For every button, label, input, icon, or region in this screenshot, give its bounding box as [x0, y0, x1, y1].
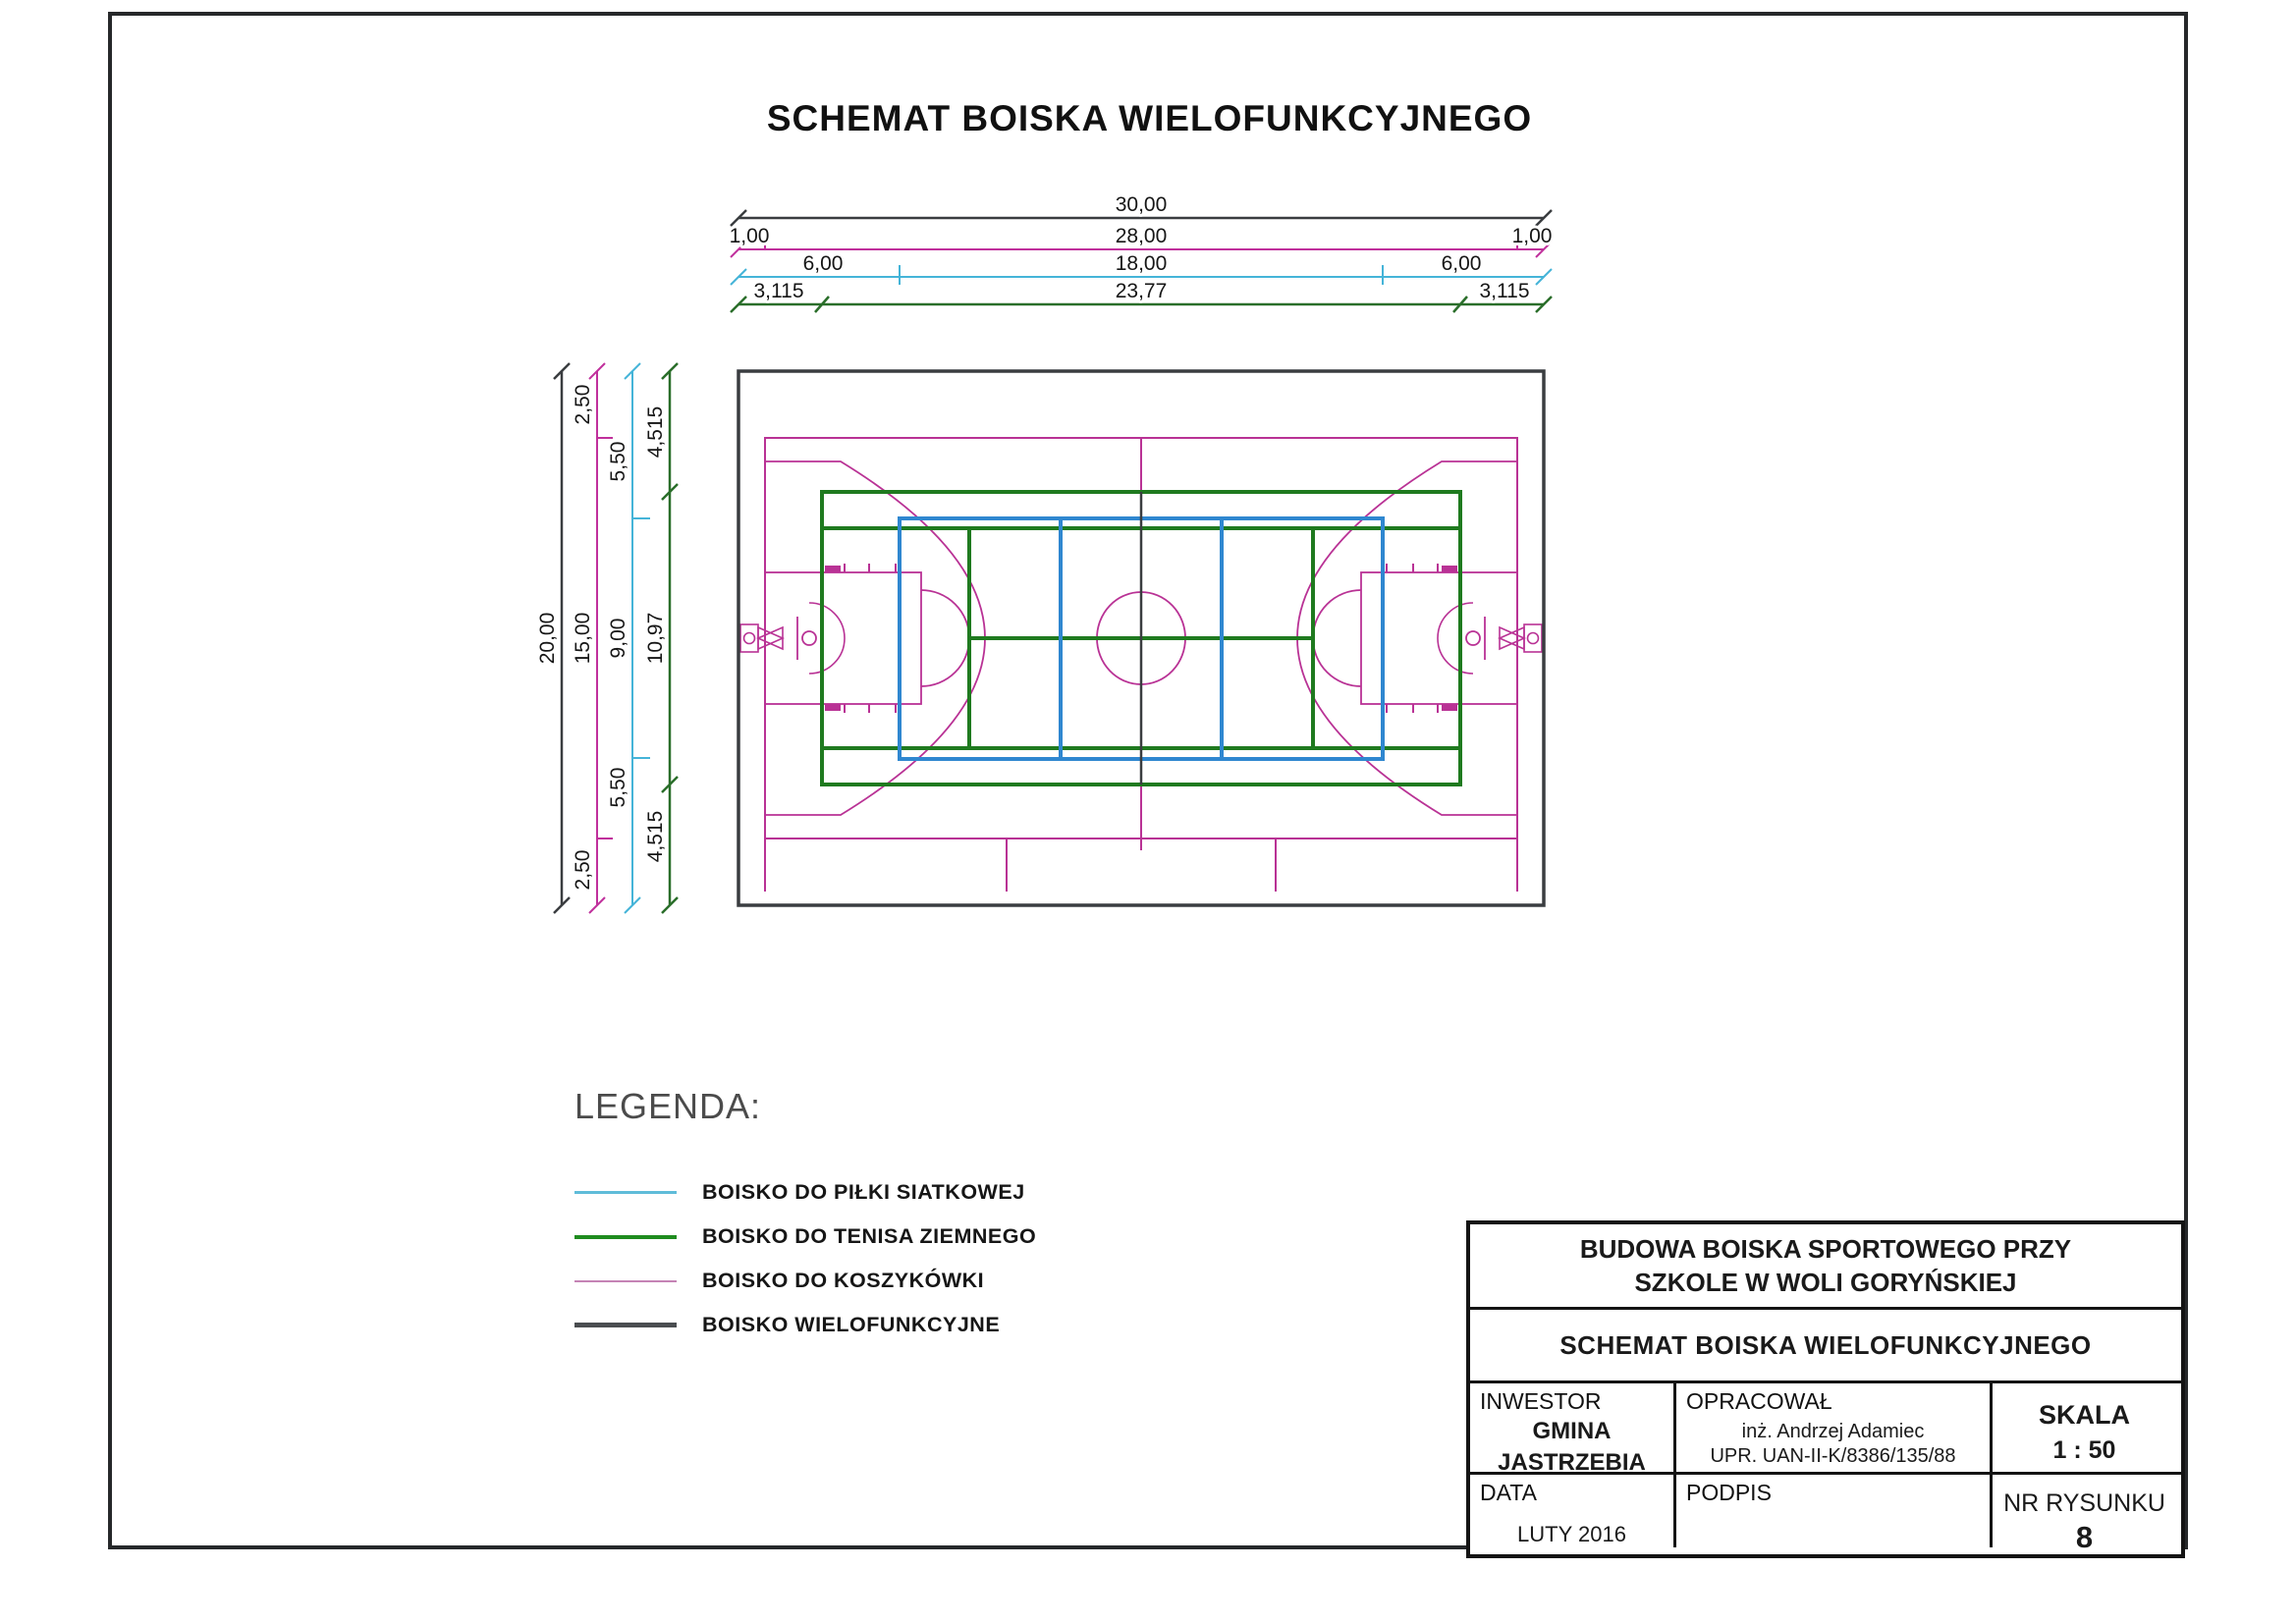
author-label: OPRACOWAŁ	[1686, 1388, 1980, 1415]
dim-field-height: 20,00	[536, 613, 559, 665]
legend-item-basketball: BOISKO DO KOSZYKÓWKI	[574, 1259, 1036, 1303]
dim-basketball-width: 28,00	[1116, 225, 1168, 247]
legend-label: BOISKO DO KOSZYKÓWKI	[702, 1269, 984, 1293]
dim-volleyball-margin-left: 6,00	[803, 252, 844, 275]
volleyball-line-swatch	[574, 1191, 677, 1194]
title-block: BUDOWA BOISKA SPORTOWEGO PRZY SZKOLE W W…	[1466, 1220, 2185, 1558]
date-cell: DATA LUTY 2016	[1470, 1475, 1676, 1547]
basketball-line-swatch	[574, 1280, 677, 1282]
dim-tennis-height: 10,97	[644, 613, 667, 665]
project-name-line1: BUDOWA BOISKA SPORTOWEGO PRZY	[1470, 1232, 2181, 1266]
dim-volleyball-margin-bottom: 5,50	[607, 768, 629, 808]
author-name: inż. Andrzej Adamiec	[1686, 1421, 1980, 1443]
investor-label: INWESTOR	[1480, 1388, 1664, 1415]
legend-item-volleyball: BOISKO DO PIŁKI SIATKOWEJ	[574, 1170, 1036, 1215]
dim-basketball-height: 15,00	[572, 613, 594, 665]
date-value: LUTY 2016	[1480, 1522, 1664, 1547]
date-label: DATA	[1480, 1480, 1664, 1506]
dim-tennis-margin-right: 3,115	[1480, 280, 1530, 302]
dim-tennis-width: 23,77	[1116, 280, 1168, 302]
legend-label: BOISKO WIELOFUNKCYJNE	[702, 1313, 1000, 1337]
legend-label: BOISKO DO PIŁKI SIATKOWEJ	[702, 1180, 1025, 1205]
investor-name-line1: GMINA	[1480, 1416, 1664, 1446]
dim-volleyball-margin-top: 5,50	[607, 442, 629, 482]
dim-volleyball-height: 9,00	[607, 619, 629, 659]
project-name-line2: SZKOLE W WOLI GORYŃSKIEJ	[1470, 1266, 2181, 1299]
title-block-row-date: DATA LUTY 2016 PODPIS NR RYSUNKU 8	[1470, 1475, 2181, 1547]
legend-item-tennis: BOISKO DO TENISA ZIEMNEGO	[574, 1215, 1036, 1259]
legend-item-multifunctional: BOISKO WIELOFUNKCYJNE	[574, 1303, 1036, 1347]
investor-cell: INWESTOR GMINA JASTRZEBIA	[1470, 1383, 1676, 1472]
dim-basketball-margin-bottom: 2,50	[572, 850, 594, 891]
scale-cell: SKALA 1 : 50	[1993, 1383, 2176, 1472]
multifunctional-line-swatch	[574, 1323, 677, 1327]
dim-tennis-margin-top: 4,515	[644, 406, 667, 459]
drawing-number-cell: NR RYSUNKU 8	[1993, 1475, 2176, 1547]
drawing-number-label: NR RYSUNKU	[2002, 1489, 2166, 1518]
tennis-line-swatch	[574, 1235, 677, 1239]
legend: BOISKO DO PIŁKI SIATKOWEJ BOISKO DO TENI…	[574, 1170, 1036, 1347]
author-cell: OPRACOWAŁ inż. Andrzej Adamiec UPR. UAN-…	[1676, 1383, 1993, 1472]
scale-value: 1 : 50	[2002, 1436, 2166, 1465]
legend-heading: LEGENDA:	[574, 1086, 761, 1127]
dim-top-labels: 30,00 1,00 28,00 1,00 6,00 18,00 6,00 3,…	[730, 193, 1553, 302]
dim-basketball-margin-top: 2,50	[572, 385, 594, 425]
signature-cell: PODPIS	[1676, 1475, 1993, 1547]
dim-volleyball-margin-right: 6,00	[1442, 252, 1482, 275]
title-block-drawing-title: SCHEMAT BOISKA WIELOFUNKCYJNEGO	[1470, 1310, 2181, 1383]
investor-name-line2: JASTRZEBIA	[1480, 1447, 1664, 1478]
scale-label: SKALA	[2002, 1400, 2166, 1431]
title-block-row-info: INWESTOR GMINA JASTRZEBIA OPRACOWAŁ inż.…	[1470, 1383, 2181, 1475]
basket-stand-right	[1500, 624, 1542, 652]
signature-label: PODPIS	[1686, 1480, 1980, 1506]
basket-stand-left	[740, 624, 783, 652]
dim-tennis-margin-bottom: 4,515	[644, 811, 667, 863]
author-license: UPR. UAN-II-K/8386/135/88	[1686, 1445, 1980, 1468]
dim-volleyball-width: 18,00	[1116, 252, 1168, 275]
dim-basketball-margin-left: 1,00	[730, 225, 770, 247]
legend-label: BOISKO DO TENISA ZIEMNEGO	[702, 1224, 1036, 1249]
title-block-project: BUDOWA BOISKA SPORTOWEGO PRZY SZKOLE W W…	[1470, 1224, 2181, 1310]
drawing-number-value: 8	[2002, 1520, 2166, 1555]
drawing-title: SCHEMAT BOISKA WIELOFUNKCYJNEGO	[1559, 1330, 2091, 1361]
dim-left-labels: 20,00 2,50 15,00 2,50 5,50 9,00 5,50 4,5…	[536, 385, 667, 891]
dim-basketball-margin-right: 1,00	[1512, 225, 1553, 247]
dim-field-width: 30,00	[1116, 193, 1168, 216]
dim-tennis-margin-left: 3,115	[754, 280, 804, 302]
